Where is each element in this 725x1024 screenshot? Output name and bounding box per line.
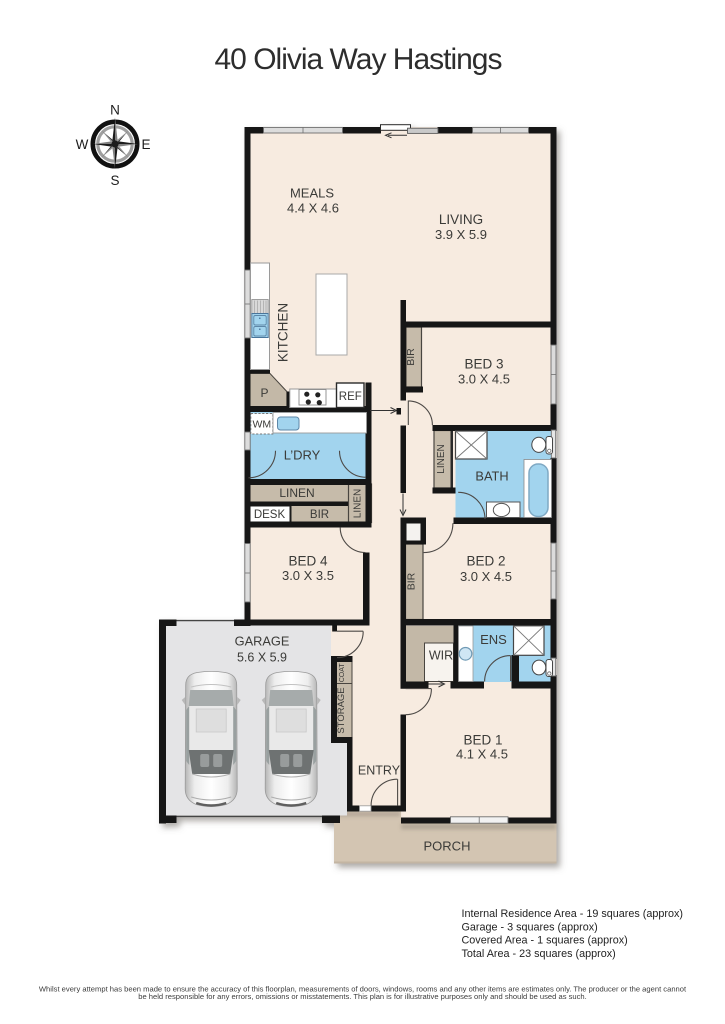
svg-text:be held responsible for any er: be held responsible for any errors, omis…	[138, 992, 587, 1001]
svg-text:DESK: DESK	[254, 509, 286, 521]
svg-text:LINEN: LINEN	[436, 444, 447, 473]
svg-text:GARAGE: GARAGE	[235, 634, 290, 649]
svg-text:3.0 X 4.5: 3.0 X 4.5	[460, 569, 512, 584]
svg-text:3.0 X 3.5: 3.0 X 3.5	[282, 568, 334, 583]
svg-text:BED 2: BED 2	[466, 554, 505, 569]
svg-text:40 Olivia Way Hastings: 40 Olivia Way Hastings	[215, 43, 502, 76]
svg-text:5.6 X 5.9: 5.6 X 5.9	[237, 651, 287, 665]
svg-text:3.9 X 5.9: 3.9 X 5.9	[435, 227, 487, 242]
svg-text:S: S	[110, 173, 119, 188]
svg-text:STORAGE: STORAGE	[336, 687, 347, 733]
svg-text:KITCHEN: KITCHEN	[276, 303, 291, 362]
svg-text:ENTRY: ENTRY	[358, 764, 401, 778]
svg-text:4.4 X 4.6: 4.4 X 4.6	[287, 201, 339, 216]
svg-text:MEALS: MEALS	[290, 186, 334, 201]
svg-text:Total Area - 23 squares (appro: Total Area - 23 squares (approx)	[462, 948, 616, 960]
svg-text:P: P	[260, 386, 268, 400]
svg-text:BATH: BATH	[475, 469, 508, 484]
svg-text:E: E	[141, 137, 150, 152]
svg-text:LINEN: LINEN	[353, 489, 364, 518]
svg-text:LINEN: LINEN	[279, 486, 314, 500]
svg-text:LIVING: LIVING	[439, 212, 483, 227]
svg-text:COAT: COAT	[339, 663, 346, 683]
svg-text:BIR: BIR	[310, 509, 329, 521]
svg-text:WIR: WIR	[429, 649, 453, 663]
svg-text:BIR: BIR	[406, 572, 418, 590]
svg-text:N: N	[110, 103, 120, 118]
svg-text:BIR: BIR	[405, 348, 417, 366]
svg-text:BED 1: BED 1	[463, 733, 502, 748]
svg-text:REF: REF	[339, 391, 362, 403]
svg-text:BED 3: BED 3	[464, 357, 503, 372]
svg-text:ENS: ENS	[480, 632, 507, 647]
svg-text:BED 4: BED 4	[288, 554, 328, 569]
svg-text:W: W	[76, 137, 89, 152]
svg-text:WM: WM	[252, 419, 271, 431]
svg-text:3.0 X 4.5: 3.0 X 4.5	[458, 372, 510, 387]
svg-text:PORCH: PORCH	[424, 839, 471, 854]
svg-text:Internal Residence Area - 19 s: Internal Residence Area - 19 squares (ap…	[462, 908, 683, 920]
svg-text:Garage - 3 squares (approx): Garage - 3 squares (approx)	[462, 921, 598, 933]
svg-text:Covered Area - 1 squares (appr: Covered Area - 1 squares (approx)	[462, 935, 628, 947]
svg-text:L’DRY: L’DRY	[284, 448, 321, 463]
svg-text:4.1 X 4.5: 4.1 X 4.5	[456, 747, 508, 762]
